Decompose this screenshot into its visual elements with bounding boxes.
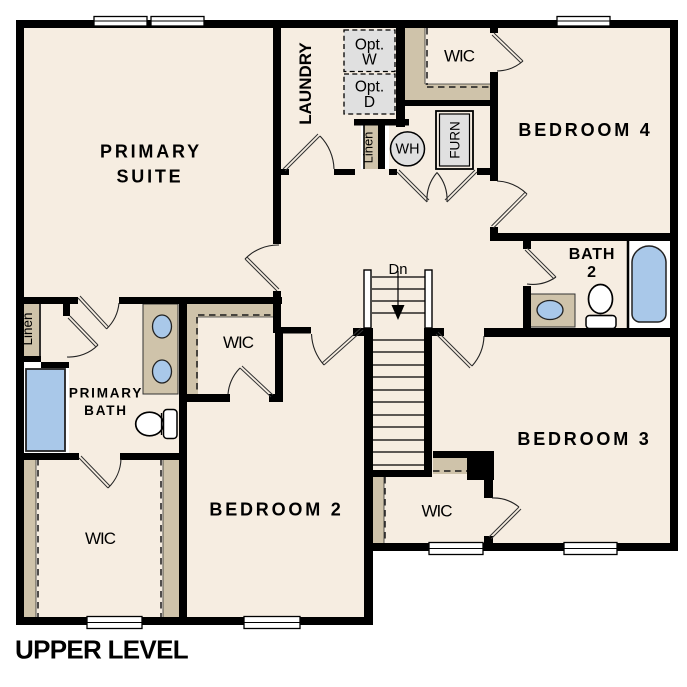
- svg-text:Linen: Linen: [20, 312, 35, 345]
- svg-text:Opt.: Opt.: [355, 79, 384, 96]
- svg-text:LAUNDRY: LAUNDRY: [296, 42, 315, 125]
- svg-text:SUITE: SUITE: [116, 167, 183, 187]
- svg-text:WIC: WIC: [444, 47, 475, 66]
- svg-text:WIC: WIC: [223, 333, 254, 352]
- svg-text:Linen: Linen: [361, 132, 376, 164]
- svg-text:2: 2: [587, 264, 597, 281]
- svg-text:PRIMARY: PRIMARY: [100, 142, 202, 162]
- svg-text:FURN: FURN: [448, 121, 463, 159]
- svg-text:BEDROOM 2: BEDROOM 2: [209, 500, 343, 520]
- svg-text:BEDROOM 4: BEDROOM 4: [518, 120, 652, 140]
- svg-text:W: W: [362, 52, 377, 69]
- svg-text:Dn: Dn: [389, 262, 408, 278]
- svg-text:BATH: BATH: [84, 403, 128, 418]
- svg-text:BEDROOM 3: BEDROOM 3: [517, 429, 651, 449]
- svg-text:WIC: WIC: [421, 502, 452, 521]
- svg-text:WH: WH: [396, 142, 420, 158]
- svg-text:PRIMARY: PRIMARY: [69, 386, 143, 401]
- svg-text:BATH: BATH: [569, 246, 615, 263]
- svg-text:UPPER LEVEL: UPPER LEVEL: [15, 635, 189, 665]
- svg-text:D: D: [364, 94, 375, 111]
- svg-text:WIC: WIC: [85, 529, 116, 548]
